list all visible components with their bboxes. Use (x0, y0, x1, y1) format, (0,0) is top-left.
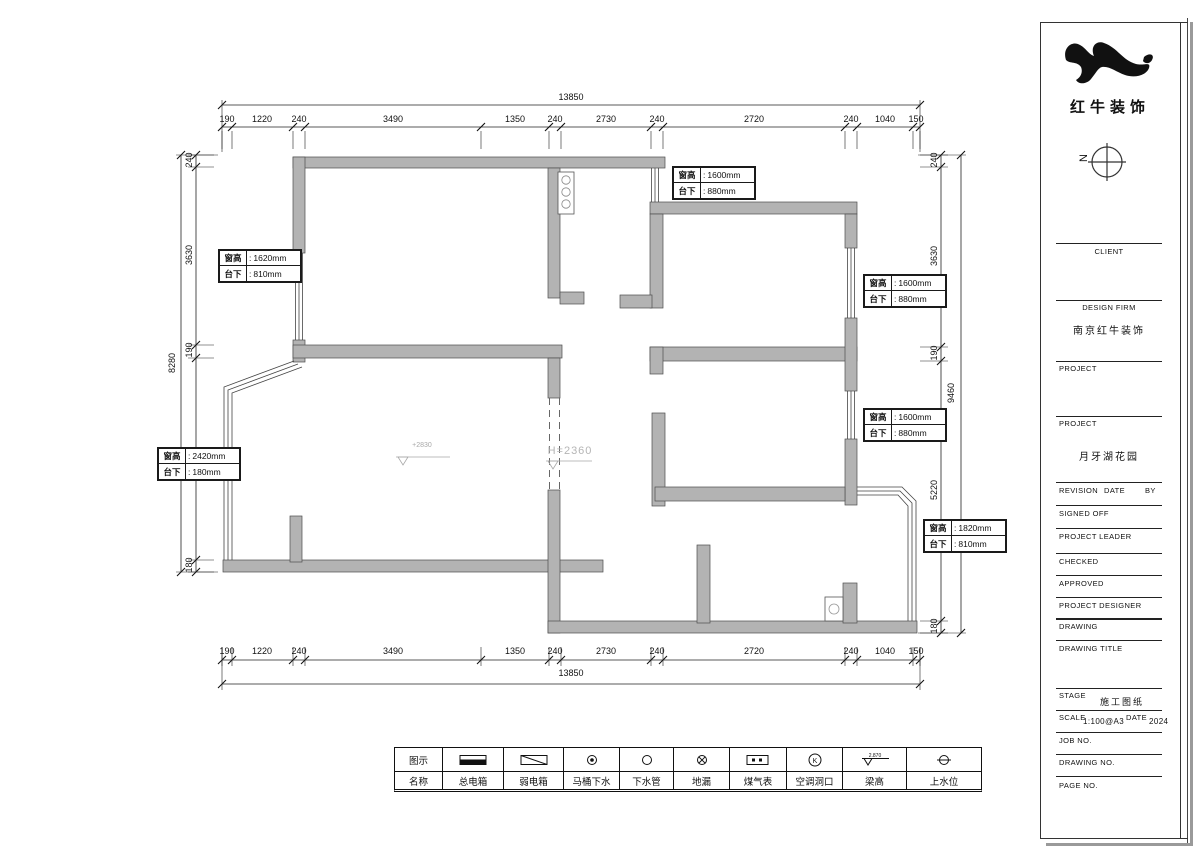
kitchen-fixture (558, 172, 574, 214)
dim-label: 240 (635, 646, 679, 656)
tag-value: 880mm (898, 294, 926, 304)
legend-item-name: 空调洞口 (787, 772, 843, 789)
legend-symbol-header: 图示 (395, 748, 443, 772)
tb-rule (1056, 528, 1162, 529)
date-label: DATE (1126, 713, 1147, 722)
sheet-right-shadow (1190, 22, 1193, 846)
tag-label: 台下 (865, 291, 892, 306)
tb-rule (1056, 482, 1162, 483)
dim-label: 150 (894, 114, 938, 124)
elevation-label: +2830 (394, 442, 450, 449)
drawing-no-label: DRAWING NO. (1059, 758, 1115, 767)
dim-label: 5220 (929, 468, 939, 512)
panel-bottom-border (1040, 838, 1188, 839)
legend-item-name: 弱电箱 (504, 772, 564, 789)
checked-label: CHECKED (1059, 557, 1098, 566)
beam-height-icon: 2.870 (843, 748, 907, 772)
walls (223, 157, 917, 633)
window-tag: 窗高 :2420mm 台下 :180mm (157, 447, 241, 481)
dim-label: 190 (184, 328, 194, 372)
panel-top-border (1040, 22, 1188, 23)
legend-name-header: 名称 (395, 772, 443, 789)
tb-rule (1056, 754, 1162, 755)
dim-label: 240 (277, 646, 321, 656)
dim-label: 3630 (184, 233, 194, 277)
tag-value: 810mm (958, 539, 986, 549)
tag-value: 880mm (898, 428, 926, 438)
legend-item-name: 总电箱 (443, 772, 504, 789)
tag-separator: : (703, 186, 705, 196)
tb-rule (1056, 618, 1162, 620)
weak-electric-box-icon (504, 748, 564, 772)
revision-label: REVISION (1059, 486, 1098, 495)
dim-total-label: 8280 (167, 341, 177, 385)
tb-rule (1056, 597, 1162, 598)
tb-rule (1056, 575, 1162, 576)
floor-plan-canvas: N (0, 0, 1200, 852)
water-supply-level-icon (907, 748, 981, 772)
window-tag: 窗高 :1620mm 台下 :810mm (218, 249, 302, 283)
tag-separator: : (954, 539, 956, 549)
svg-text:K: K (812, 758, 817, 765)
tb-rule (1056, 710, 1162, 711)
tag-value: 1600mm (707, 170, 740, 180)
tag-value: 1600mm (898, 412, 931, 422)
tag-label: 台下 (865, 425, 892, 440)
scale-label: SCALE (1059, 713, 1086, 722)
dim-label: 180 (184, 543, 194, 587)
window-tag: 窗高 :1600mm 台下 :880mm (672, 166, 756, 200)
by-label: BY (1145, 486, 1156, 495)
tag-value: 2420mm (192, 451, 225, 461)
tag-separator: : (703, 170, 705, 180)
tb-rule (1056, 300, 1162, 301)
tag-label: 台下 (220, 266, 247, 281)
window-tag: 窗高 :1820mm 台下 :810mm (923, 519, 1007, 553)
tag-value: 810mm (253, 269, 281, 279)
legend-item-name: 煤气表 (730, 772, 787, 789)
bathroom-fixture (825, 597, 843, 621)
tb-rule (1056, 732, 1162, 733)
dim-label: 2720 (732, 646, 776, 656)
tag-label: 窗高 (925, 521, 952, 536)
project-designer-label: PROJECT DESIGNER (1059, 601, 1142, 610)
tag-value: 880mm (707, 186, 735, 196)
design-firm-label: DESIGN FIRM (1056, 303, 1162, 312)
drawing-title-label: DRAWING TITLE (1059, 644, 1123, 653)
project-label: PROJECT (1059, 364, 1097, 373)
tag-value: 1620mm (253, 253, 286, 263)
north-label: N (1078, 154, 1090, 162)
dim-label: 1350 (493, 114, 537, 124)
legend-item-name: 地漏 (674, 772, 730, 789)
opening-dashed-lines (550, 398, 560, 490)
dim-label: 2730 (584, 114, 628, 124)
legend-table: 图示 K 2.870 名称 总电箱 弱电箱 马桶下水 下水 (394, 747, 982, 792)
tag-label: 窗高 (159, 449, 186, 464)
tag-value: 1820mm (958, 523, 991, 533)
legend-item-name: 上水位 (907, 772, 981, 789)
legend-item-name: 梁高 (843, 772, 907, 789)
tag-separator: : (249, 269, 251, 279)
tb-rule (1056, 416, 1162, 417)
company-name: 红牛装饰 (1056, 96, 1164, 117)
dim-total-label: 9460 (946, 371, 956, 415)
tag-label: 窗高 (674, 168, 701, 183)
tag-label: 台下 (674, 183, 701, 198)
date-value: 2024 (1149, 717, 1168, 726)
dim-label: 240 (635, 114, 679, 124)
tag-label: 台下 (925, 536, 952, 551)
main-electric-box-icon (443, 748, 504, 772)
floor-drain-icon (674, 748, 730, 772)
tag-separator: : (188, 467, 190, 477)
dim-label: 2720 (732, 114, 776, 124)
drawing-sheet: N +2830 H=2360 190 1220 240 3490 1350 24… (0, 0, 1200, 852)
design-firm-value: 南京红牛装饰 (1056, 322, 1162, 337)
tag-separator: : (894, 428, 896, 438)
dim-label: 240 (929, 138, 939, 182)
ac-opening-icon: K (787, 748, 843, 772)
tb-rule (1056, 361, 1162, 362)
tag-value: 1600mm (898, 278, 931, 288)
tb-rule (1056, 776, 1162, 777)
project-value: 月牙湖花园 (1056, 448, 1162, 463)
window-tag: 窗高 :1600mm 台下 :880mm (863, 274, 947, 308)
dim-label: 2730 (584, 646, 628, 656)
dim-total-label: 13850 (549, 92, 593, 102)
sheet-bottom-shadow (1046, 843, 1193, 846)
sheet-right-border (1187, 18, 1188, 844)
tb-rule (1056, 553, 1162, 554)
tb-rule (1056, 505, 1162, 506)
window-tag: 窗高 :1600mm 台下 :880mm (863, 408, 947, 442)
dim-label: 240 (184, 138, 194, 182)
dim-total-label: 13850 (549, 668, 593, 678)
dim-label: 240 (533, 646, 577, 656)
opening-height-label: H=2360 (540, 445, 600, 457)
stage-value: 施工图纸 (1100, 695, 1144, 708)
company-logo-icon (1065, 42, 1153, 83)
dim-label: 3490 (371, 646, 415, 656)
tag-separator: : (894, 412, 896, 422)
tag-separator: : (954, 523, 956, 533)
drawing-label: DRAWING (1059, 622, 1098, 631)
project-leader-label: PROJECT LEADER (1059, 532, 1132, 541)
dim-label: 190 (929, 331, 939, 375)
page-no-label: PAGE NO. (1059, 781, 1098, 790)
tag-value: 180mm (192, 467, 220, 477)
tag-separator: : (894, 294, 896, 304)
tag-label: 窗高 (865, 276, 892, 291)
tag-label: 台下 (159, 464, 186, 479)
elevation-markers (396, 457, 592, 469)
tb-rule (1056, 243, 1162, 244)
scale-value: 1:100@A3 (1083, 717, 1124, 726)
tag-separator: : (894, 278, 896, 288)
approved-label: APPROVED (1059, 579, 1104, 588)
north-arrow-icon: N (1078, 143, 1126, 181)
dim-label: 1350 (493, 646, 537, 656)
client-label: CLIENT (1056, 247, 1162, 256)
tag-separator: : (249, 253, 251, 263)
bay-window-right (857, 487, 916, 621)
drain-pipe-icon (620, 748, 674, 772)
date-label: DATE (1104, 486, 1125, 495)
dim-label: 180 (929, 604, 939, 648)
dim-label: 3490 (371, 114, 415, 124)
tb-rule (1056, 640, 1162, 641)
job-no-label: JOB NO. (1059, 736, 1092, 745)
dim-label: 240 (277, 114, 321, 124)
signed-off-label: SIGNED OFF (1059, 509, 1109, 518)
panel-left-border (1040, 22, 1041, 838)
dim-label: 3630 (929, 234, 939, 278)
legend-item-name: 马桶下水 (564, 772, 620, 789)
tag-label: 窗高 (865, 410, 892, 425)
legend-item-name: 下水管 (620, 772, 674, 789)
panel-right-border (1180, 22, 1181, 838)
tag-label: 窗高 (220, 251, 247, 266)
tb-rule (1056, 688, 1162, 689)
toilet-drain-icon (564, 748, 620, 772)
dim-label: 240 (533, 114, 577, 124)
gas-meter-icon (730, 748, 787, 772)
tag-separator: : (188, 451, 190, 461)
stage-label: STAGE (1059, 691, 1086, 700)
project-label: PROJECT (1059, 419, 1097, 428)
